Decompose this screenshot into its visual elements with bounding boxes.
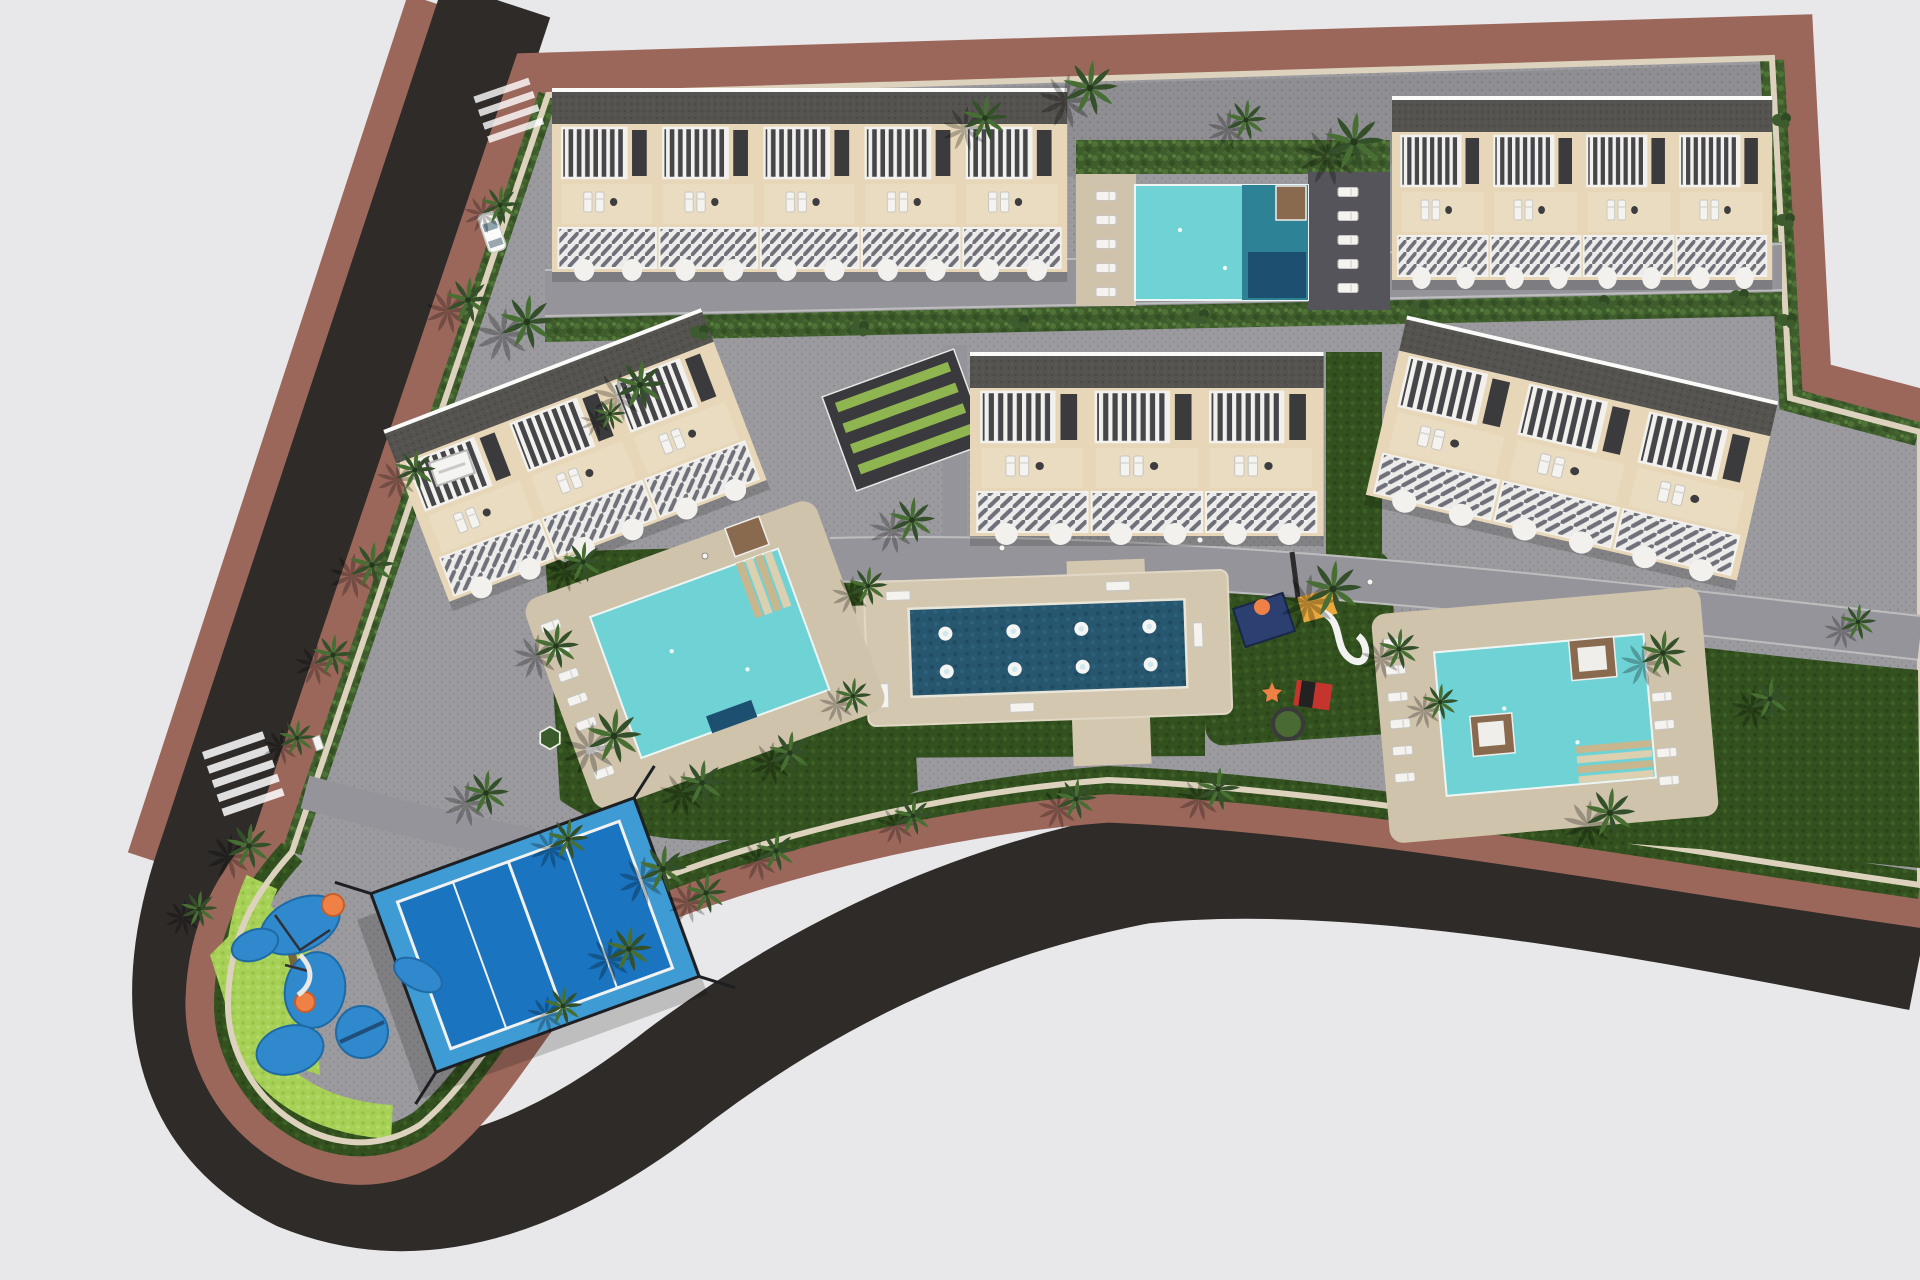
pool-platform: [1248, 252, 1306, 298]
light-pole: [999, 545, 1005, 551]
bench: [1106, 581, 1130, 591]
building-central: [970, 352, 1324, 546]
pergola: [1276, 186, 1306, 220]
light-pole: [1367, 579, 1373, 585]
bench: [886, 591, 910, 601]
bench: [1010, 703, 1034, 713]
sandpit-ring: [1273, 709, 1303, 739]
between-blocks-lawn: [1326, 352, 1382, 557]
play-dome: [322, 894, 344, 916]
site-plan-render: Aerial top-down 3D architectural render …: [0, 0, 1920, 1280]
light-pole: [702, 553, 708, 559]
fountain: [864, 570, 1233, 727]
light-pole: [1197, 537, 1203, 543]
building-north-east: [1392, 96, 1772, 290]
bench: [1193, 623, 1203, 647]
fountain-basin: [909, 599, 1188, 697]
